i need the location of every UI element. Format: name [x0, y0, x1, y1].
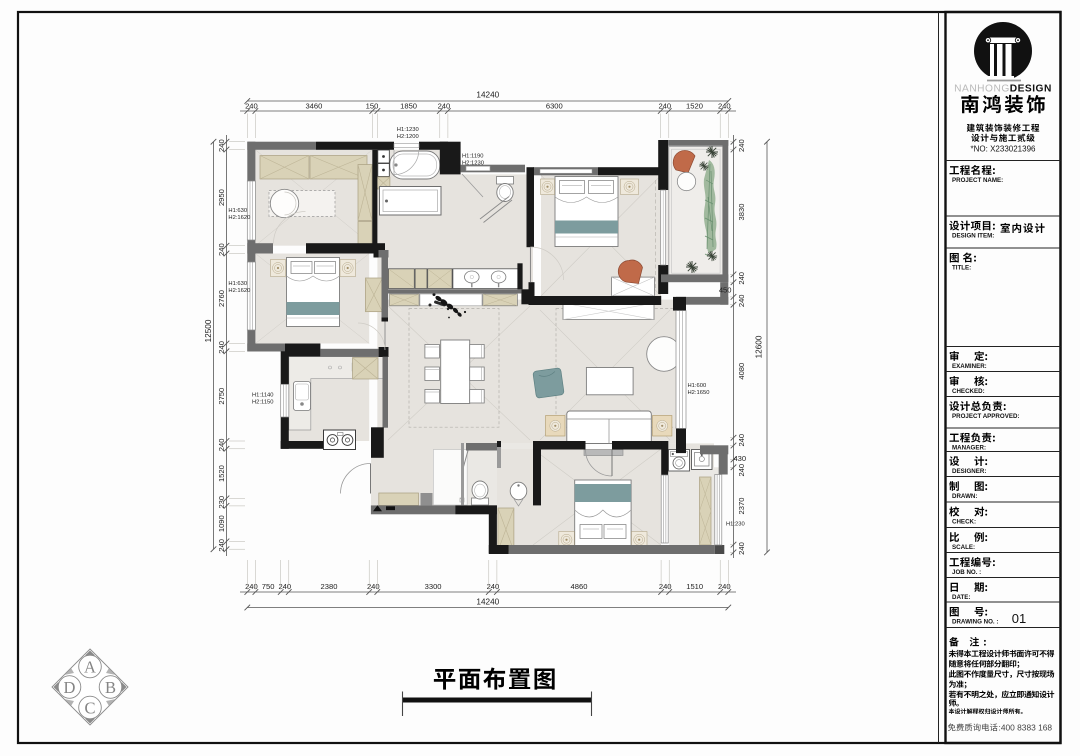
- svg-text:2380: 2380: [321, 582, 338, 591]
- svg-text:DESIGN ITEM:: DESIGN ITEM:: [952, 233, 994, 240]
- svg-text:4860: 4860: [571, 582, 588, 591]
- svg-text:240: 240: [737, 294, 746, 307]
- svg-text:H1:1230: H1:1230: [397, 127, 419, 133]
- svg-text:H1:1190: H1:1190: [462, 154, 484, 160]
- svg-text:DRAWN:: DRAWN:: [952, 493, 977, 500]
- svg-text:3300: 3300: [425, 582, 442, 591]
- svg-text:240: 240: [438, 101, 451, 110]
- svg-text:2950: 2950: [217, 189, 226, 206]
- svg-text:H2:1620: H2:1620: [228, 215, 250, 221]
- svg-text:NANHONGDESIGN: NANHONGDESIGN: [954, 84, 1052, 95]
- svg-text:240: 240: [659, 582, 672, 591]
- svg-text:JOB NO. :: JOB NO. :: [952, 569, 981, 576]
- svg-text:PROJECT APPROVED:: PROJECT APPROVED:: [952, 413, 1020, 420]
- svg-text:4080: 4080: [737, 363, 746, 380]
- svg-text:2760: 2760: [217, 290, 226, 307]
- svg-text::400 8383 168: :400 8383 168: [999, 723, 1053, 733]
- svg-text:H1:1140: H1:1140: [252, 393, 274, 399]
- svg-text:PROJECT NAME:: PROJECT NAME:: [952, 177, 1003, 184]
- svg-text:6300: 6300: [546, 101, 563, 110]
- svg-text:B: B: [105, 678, 116, 697]
- svg-text:450: 450: [719, 285, 732, 294]
- svg-text:240: 240: [487, 582, 500, 591]
- svg-text:DRAWING NO. :: DRAWING NO. :: [952, 619, 998, 626]
- svg-text:12500: 12500: [204, 319, 213, 342]
- svg-text:1850: 1850: [400, 101, 417, 110]
- svg-text:H1:230: H1:230: [726, 522, 745, 528]
- svg-text:240: 240: [245, 101, 258, 110]
- svg-text:1510: 1510: [686, 582, 703, 591]
- svg-text:240: 240: [245, 582, 258, 591]
- svg-text:1520: 1520: [686, 101, 703, 110]
- svg-text:A: A: [84, 657, 96, 676]
- svg-text:CHECKED:: CHECKED:: [952, 388, 985, 395]
- svg-text:H2:1200: H2:1200: [397, 134, 419, 140]
- svg-text:240: 240: [737, 542, 746, 555]
- svg-text:H2:1650: H2:1650: [688, 390, 710, 396]
- svg-text:DESIGNER:: DESIGNER:: [952, 468, 986, 475]
- svg-text:1090: 1090: [217, 515, 226, 532]
- svg-text:SCALE:: SCALE:: [952, 544, 975, 551]
- svg-text:240: 240: [278, 582, 291, 591]
- svg-text:01: 01: [1012, 611, 1026, 626]
- svg-text:240: 240: [737, 272, 746, 285]
- svg-text:H2:1230: H2:1230: [462, 161, 484, 167]
- svg-text:240: 240: [737, 434, 746, 447]
- svg-text:240: 240: [217, 139, 226, 152]
- svg-text:150: 150: [366, 101, 379, 110]
- svg-text:H1:600: H1:600: [688, 383, 707, 389]
- svg-text:2370: 2370: [737, 498, 746, 515]
- svg-text:3830: 3830: [737, 204, 746, 221]
- svg-text:12600: 12600: [755, 335, 764, 358]
- svg-text:H1:630: H1:630: [228, 281, 247, 287]
- svg-text:240: 240: [217, 243, 226, 256]
- svg-text:CHECK:: CHECK:: [952, 519, 976, 526]
- svg-text:1520: 1520: [217, 465, 226, 482]
- svg-text:H2:1620: H2:1620: [228, 288, 250, 294]
- svg-text:H2:1150: H2:1150: [252, 400, 274, 406]
- svg-text:14240: 14240: [476, 597, 499, 606]
- svg-text:TITLE:: TITLE:: [952, 265, 971, 272]
- svg-text:240: 240: [217, 439, 226, 452]
- svg-text:240: 240: [658, 101, 671, 110]
- svg-text:MANAGER:: MANAGER:: [952, 445, 986, 452]
- svg-text:750: 750: [262, 582, 275, 591]
- svg-text:240: 240: [217, 341, 226, 354]
- svg-text:240: 240: [367, 582, 380, 591]
- svg-text:D: D: [64, 678, 76, 697]
- svg-text:240: 240: [718, 101, 731, 110]
- svg-text:3460: 3460: [305, 101, 322, 110]
- svg-text:230: 230: [217, 496, 226, 509]
- svg-text:240: 240: [737, 139, 746, 152]
- svg-text:2750: 2750: [217, 388, 226, 405]
- svg-text:240: 240: [737, 464, 746, 477]
- svg-text:240: 240: [217, 539, 226, 552]
- svg-text:*NO: X233021396: *NO: X233021396: [971, 145, 1036, 154]
- svg-text:240: 240: [718, 582, 731, 591]
- svg-text:14240: 14240: [476, 91, 499, 100]
- svg-text:DATE:: DATE:: [952, 594, 970, 601]
- svg-text:EXAMINER:: EXAMINER:: [952, 363, 987, 370]
- svg-text:H1:630: H1:630: [228, 208, 247, 214]
- svg-text:C: C: [84, 698, 95, 717]
- svg-text:430: 430: [733, 454, 746, 463]
